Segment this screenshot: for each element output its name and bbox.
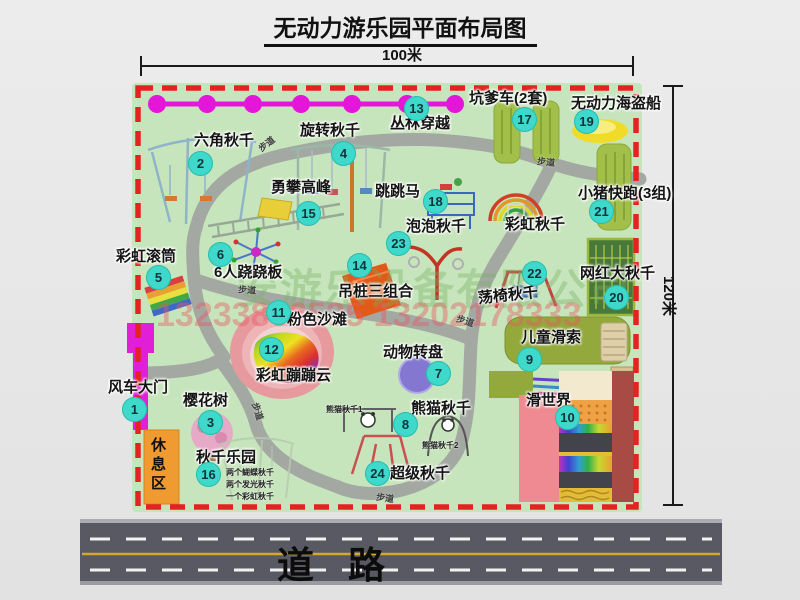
marker-13-jungle-crossing: 13 [404,96,429,121]
marker-3-cherry-tree: 3 [198,410,223,435]
label-big-swing: 网红大秋千 [580,266,655,281]
marker-12-rainbow-cloud: 12 [259,337,284,362]
path-label: 步道 [238,285,257,295]
label-super-swing: 超级秋千 [390,466,450,481]
marker-21-piggy-run: 21 [589,199,614,224]
marker-18-jumping-horse: 18 [423,189,448,214]
label-panda-swing: 熊猫秋千 [411,401,471,416]
marker-17-pit-car: 17 [512,107,537,132]
label-rest-area: 休息区 [150,437,165,494]
label-swing-park-note-2: 两个发光秋千 [226,479,274,491]
label-animal-turntable: 动物转盘 [383,345,443,360]
marker-10-slide-world: 10 [555,405,580,430]
marker-23-bubble-swing: 23 [386,231,411,256]
marker-16-swing-park: 16 [196,462,221,487]
label-kids-zipline: 儿童滑索 [521,330,581,345]
label-hanging-piles: 吊桩三组合 [338,284,413,299]
label-bubble-swing: 泡泡秋千 [406,219,466,234]
marker-5-rainbow-roller: 5 [146,265,171,290]
label-jumping-horse: 跳跳马 [375,184,420,199]
label-piggy-run: 小猪快跑(3组) [578,186,671,201]
label-cherry-tree: 樱花树 [183,393,228,408]
marker-11-pink-beach: 11 [266,300,291,325]
marker-19-pirate-ship: 19 [574,109,599,134]
label-pit-car: 坑爹车(2套) [469,91,547,106]
label-pink-beach: 粉色沙滩 [287,312,347,327]
label-swing-park-note-3: 一个彩虹秋千 [226,491,274,503]
marker-6-seesaw: 6 [208,242,233,267]
label-rainbow-cloud: 彩虹蹦蹦云 [256,368,331,383]
marker-22-chair-swing: 22 [522,261,547,286]
marker-8-panda-swing: 8 [393,412,418,437]
dimension-height-label: 120米 [659,276,680,316]
page-title: 无动力游乐园平面布局图 [0,9,800,43]
label-panda-swing-1: 熊猫秋千1 [326,404,362,416]
label-seesaw: 6人跷跷板 [214,265,282,280]
road-label: 道路 [277,535,419,589]
label-climbing-peak: 勇攀高峰 [271,180,331,195]
label-swing-park-note-1: 两个蝴蝶秋千 [226,467,274,479]
marker-7-animal-turntable: 7 [426,361,451,386]
marker-1-windmill-gate: 1 [122,397,147,422]
playground-plan-screenshot: 无动力游乐园平面布局图 100米 120米 安游乐设备有限公司 13233806… [0,0,800,600]
marker-14-hanging-piles: 14 [347,253,372,278]
marker-20-big-swing: 20 [604,285,629,310]
label-windmill-gate: 风车大门 [108,380,168,395]
marker-4-rotary-swing: 4 [331,141,356,166]
marker-9-kids-zipline: 9 [517,347,542,372]
marker-2-hexagon-swing: 2 [188,151,213,176]
dimension-width-label: 100米 [382,44,422,65]
marker-15-climbing-peak: 15 [296,201,321,226]
marker-24-super-swing: 24 [365,461,390,486]
label-rainbow-roller: 彩虹滚筒 [116,249,176,264]
label-rainbow-swing: 彩虹秋千 [505,217,565,232]
label-rotary-swing: 旋转秋千 [300,123,360,138]
path-label: 步道 [537,157,556,168]
label-panda-swing-2: 熊猫秋千2 [422,440,458,452]
label-hexagon-swing: 六角秋千 [194,133,254,148]
